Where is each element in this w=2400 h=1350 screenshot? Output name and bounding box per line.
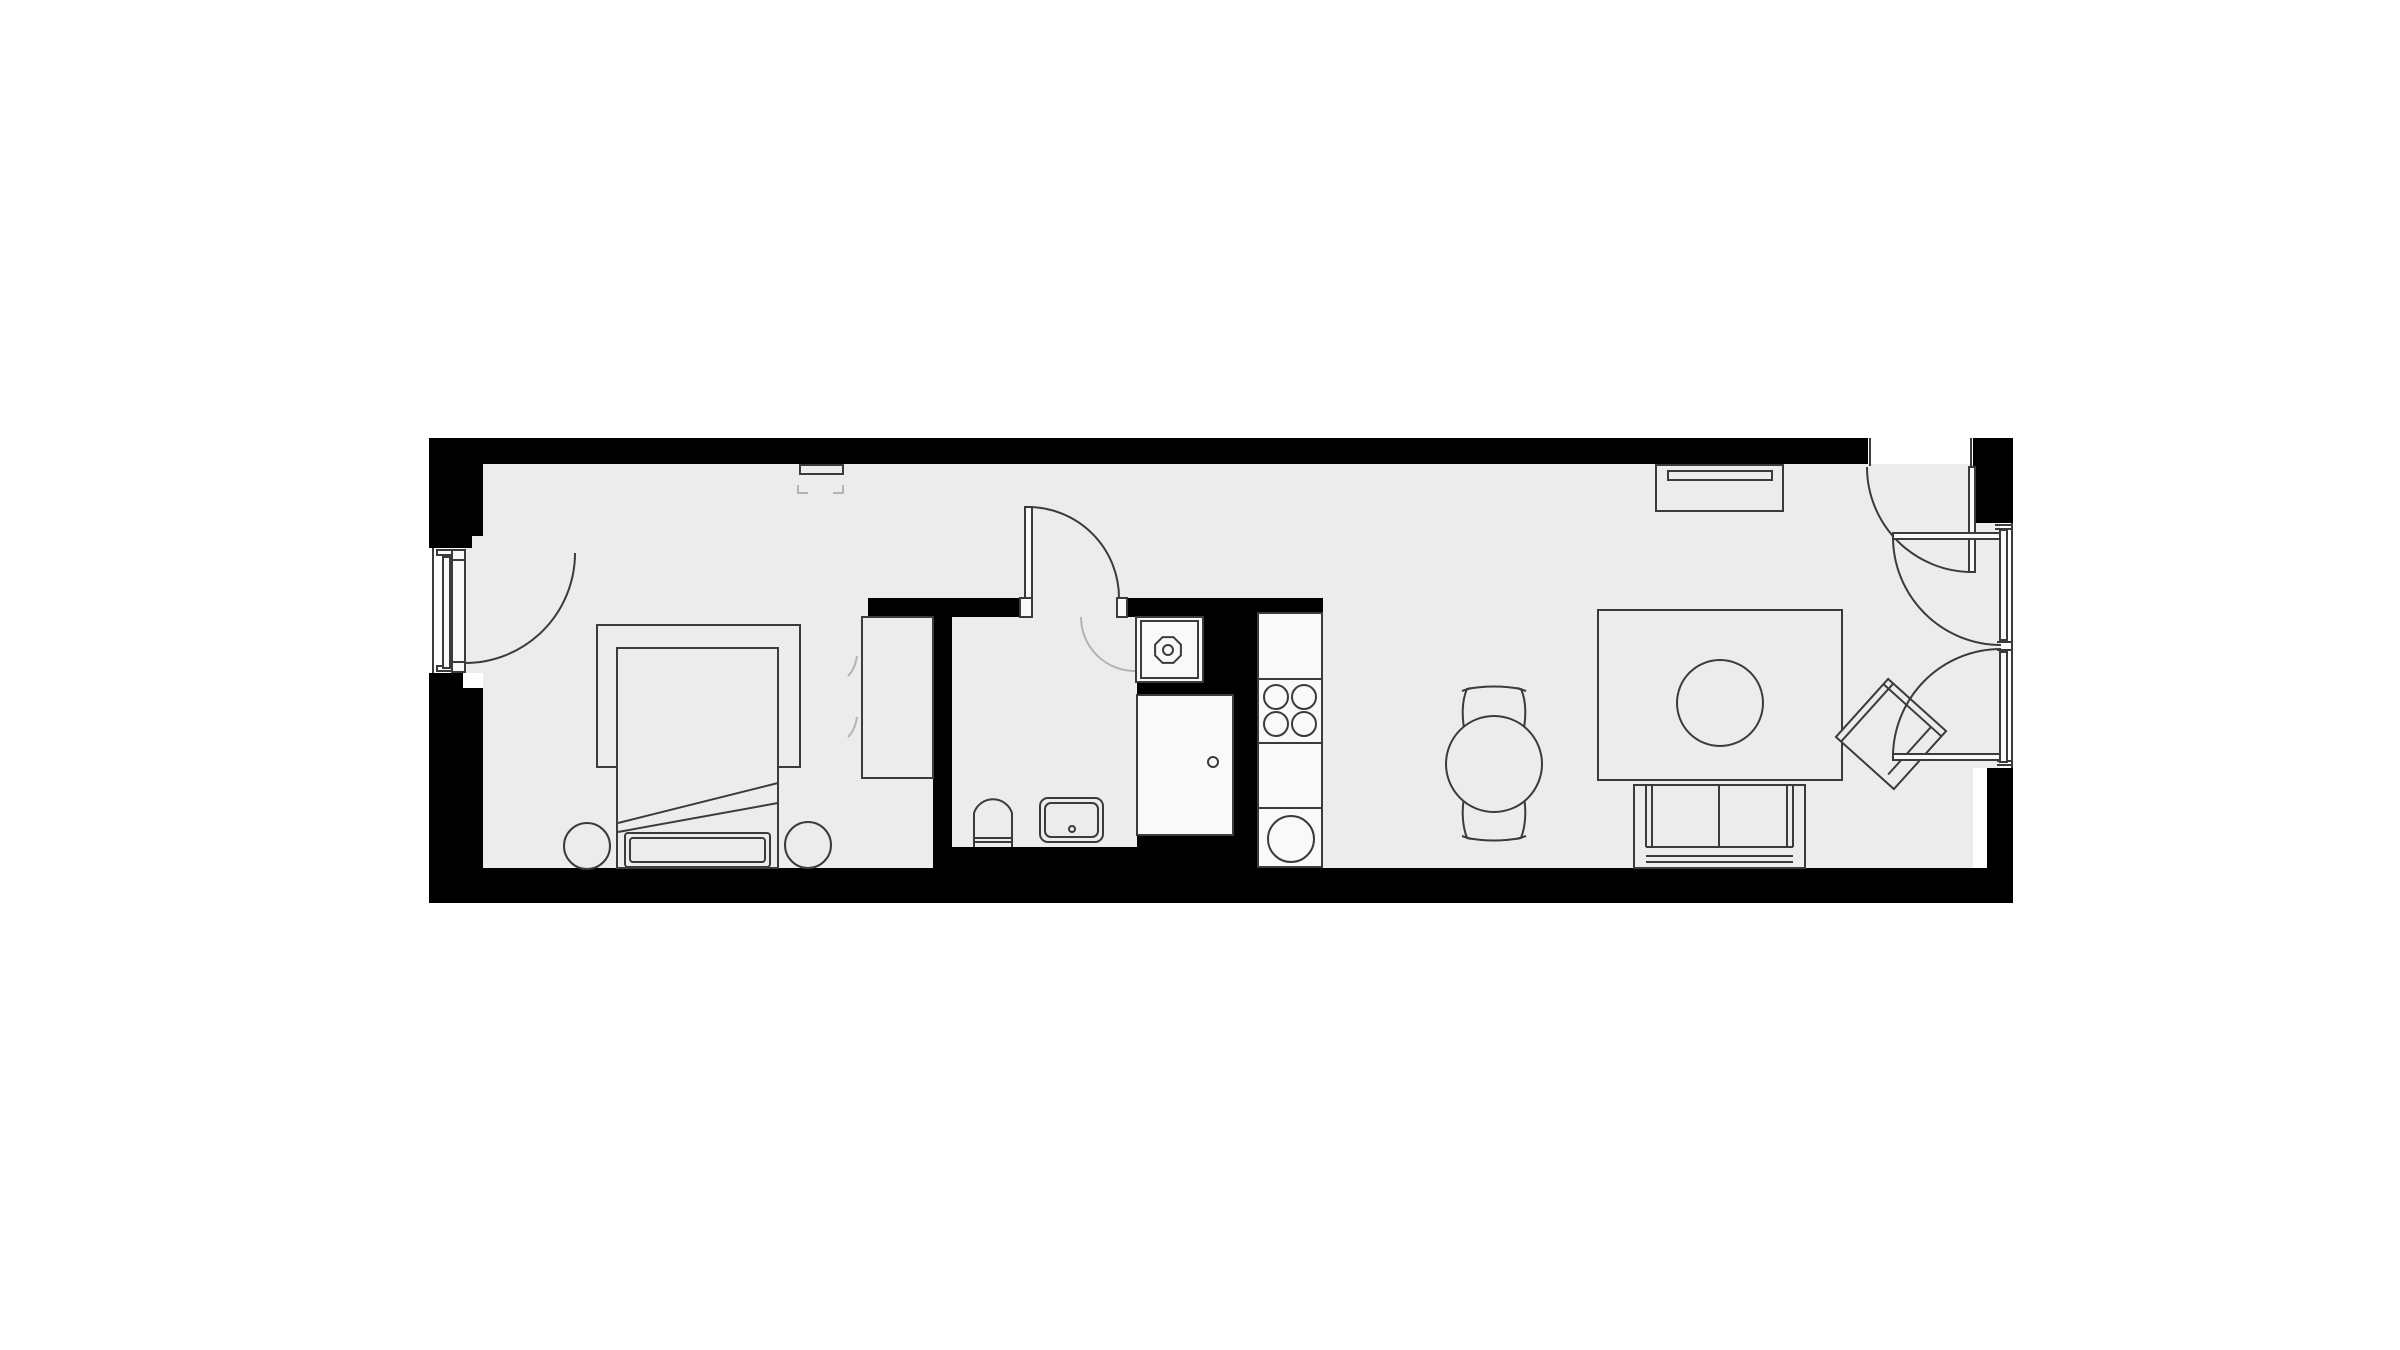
round-stool-left [564,823,610,869]
wall-left-upper [429,438,483,536]
wall-band-below-washer [1137,682,1233,696]
floor-plan-canvas [0,0,2400,1350]
wall-left-step [429,536,472,548]
bathroom-door-leaf [1025,507,1032,598]
floor-step [472,536,483,548]
tall-cabinet-fridge [1137,695,1233,835]
wall-bottom-right-block [1987,768,2013,870]
wall-stub-bathroom-left [868,598,1020,617]
floor-plan [0,0,2400,1350]
washing-machine-body [1136,617,1203,682]
wardrobe [862,617,933,778]
entrance-door-hinge-top [452,550,465,560]
entrance-door-hinge-bottom [452,662,465,672]
wall-bathroom-bottom [933,847,1137,868]
wall-bottom [429,868,2013,903]
balcony-door-top-leaf [1969,467,1975,572]
wall-top-right-corner [1973,438,2013,523]
balcony-door-right-lower-leaf [1893,754,2000,760]
wall-band-below-fridge [1137,835,1233,868]
wall-bedroom-bathroom [933,598,952,868]
entrance-sidelight-glazing [443,557,450,668]
balcony-door-top-jambs [1870,438,1971,466]
round-stool-right [785,822,831,868]
wall-service-column [1233,617,1258,868]
right-wall-glazing-lower [2000,652,2007,762]
wall-left-mid [429,673,463,688]
wall-left-lower [429,688,483,868]
right-wall-glazing-upper [2000,530,2007,640]
wall-top [429,438,1868,464]
wall-stub-bathroom-right [1127,598,1258,617]
entrance-door-leaf [452,550,465,672]
round-coffee-table [1677,660,1763,746]
bed-mattress [617,648,778,868]
entrance-cap-top [437,550,452,555]
bathroom-door-jamb-right [1117,598,1127,617]
bathroom-door-jamb-left [1020,598,1032,617]
balcony-door-right-upper-leaf [1893,533,2000,539]
round-dining-table [1446,716,1542,812]
wall-stub-kitchen-top [1258,598,1323,613]
